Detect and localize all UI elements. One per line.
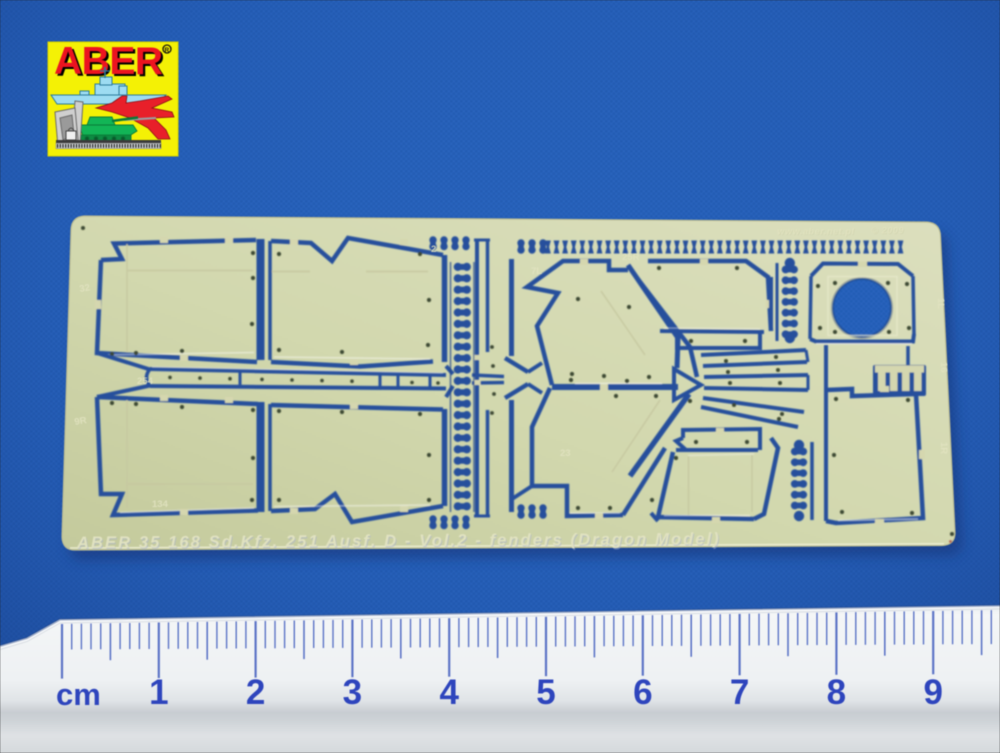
svg-text:www.aber.net.pl: www.aber.net.pl [778, 227, 855, 237]
svg-text:1: 1 [149, 673, 168, 712]
svg-text:8: 8 [827, 673, 846, 712]
svg-text:1L: 1L [935, 298, 946, 309]
svg-text:9R: 9R [74, 415, 88, 428]
svg-text:3: 3 [343, 673, 362, 712]
svg-text:4: 4 [439, 673, 459, 712]
svg-text:16: 16 [938, 362, 949, 373]
svg-text:2: 2 [246, 673, 265, 712]
svg-text:2: 2 [431, 244, 436, 255]
svg-text:25R: 25R [622, 252, 640, 263]
svg-text:7: 7 [730, 673, 749, 712]
svg-text:© 2009: © 2009 [872, 226, 905, 236]
svg-text:1R: 1R [938, 442, 949, 454]
svg-text:32: 32 [79, 282, 91, 295]
svg-text:254: 254 [137, 376, 154, 387]
svg-text:9: 9 [923, 673, 942, 712]
svg-text:7L: 7L [531, 266, 542, 277]
svg-text:5: 5 [536, 673, 555, 712]
svg-text:6: 6 [633, 673, 652, 712]
svg-text:R: R [165, 47, 170, 54]
svg-text:134: 134 [152, 499, 169, 510]
svg-text:cm: cm [56, 677, 101, 712]
svg-text:23: 23 [560, 448, 571, 459]
